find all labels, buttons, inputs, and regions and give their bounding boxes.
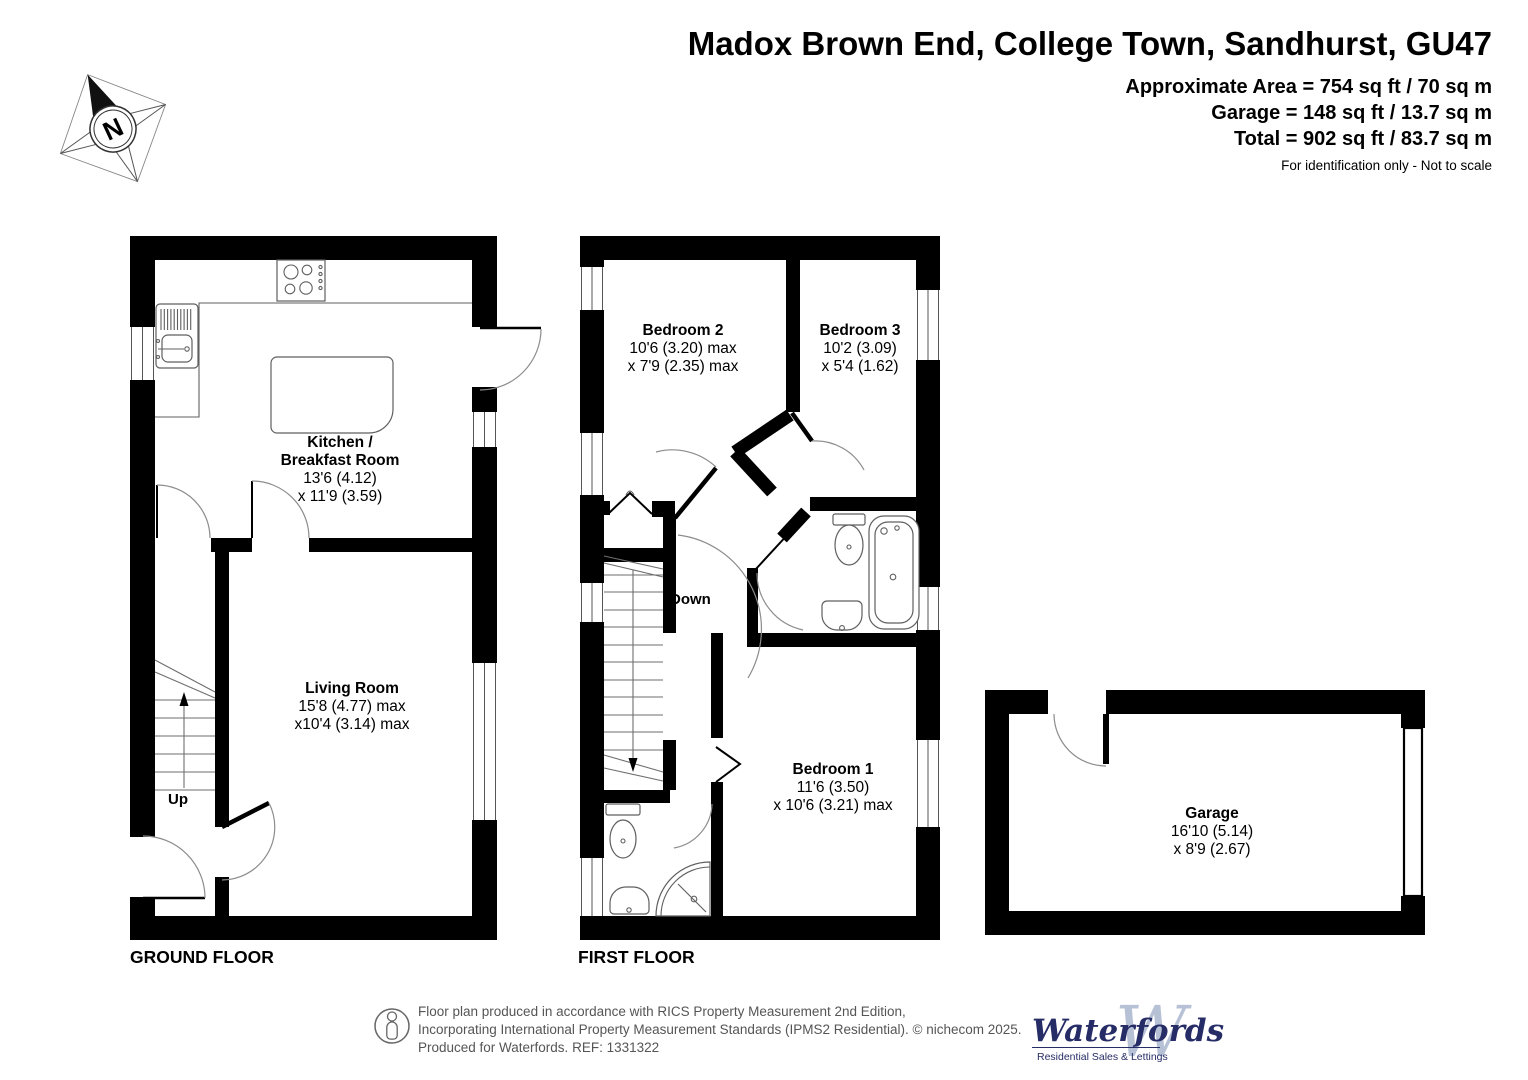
ensuite-sink [610, 887, 649, 914]
bathroom-door-leaf [755, 532, 790, 570]
ground-floor-plan: Kitchen / Breakfast Room 13'6 (4.12) x 1… [130, 236, 541, 967]
compass-icon: N [35, 50, 190, 206]
approximate-area-text: Approximate Area = 754 sq ft / 70 sq m [1125, 76, 1492, 98]
hall-kitchen-door-arc [157, 485, 210, 538]
disclaimer-text: For identification only - Not to scale [1281, 158, 1492, 173]
garage-up-and-over-door [1404, 728, 1422, 896]
garage-area-text: Garage = 148 sq ft / 13.7 sq m [1211, 102, 1492, 124]
kitchen-island [271, 357, 393, 433]
svg-text:Breakfast Room: Breakfast Room [281, 452, 400, 469]
logo-name: Waterfords [1032, 1013, 1224, 1049]
bedroom2-label: Bedroom 2 [643, 322, 724, 339]
kitchen-hob [277, 260, 325, 301]
ensuite-door-arc [674, 804, 712, 848]
kitchen-fixtures [155, 260, 472, 433]
footer: Floor plan produced in accordance with R… [375, 991, 1224, 1073]
total-area-text: Total = 902 sq ft / 83.7 sq m [1234, 128, 1492, 150]
floorplan-page: Madox Brown End, College Town, Sandhurst… [0, 0, 1528, 1080]
svg-text:11'6 (3.50): 11'6 (3.50) [797, 779, 869, 796]
bedroom1-label: Bedroom 1 [793, 761, 874, 778]
garage-entry-door [1054, 714, 1109, 766]
bedroom3-door-leaf [792, 413, 812, 441]
svg-text:x 10'6 (3.21) max: x 10'6 (3.21) max [773, 797, 893, 814]
stairs-down-label: Down [670, 591, 711, 608]
first-floor-title: FIRST FLOOR [578, 947, 695, 967]
ensuite-toilet [606, 804, 640, 858]
garage-label: Garage [1185, 805, 1239, 822]
front-door-arc [143, 836, 205, 898]
svg-text:13'6 (4.12): 13'6 (4.12) [303, 470, 377, 487]
svg-text:x10'4 (3.14) max: x10'4 (3.14) max [295, 716, 410, 733]
bedroom2-wardrobe-doors [608, 491, 652, 514]
bedroom1-bifold-door [716, 747, 740, 782]
bathroom-sink [822, 601, 862, 630]
stairs-up-arrow [180, 692, 189, 706]
footer-line-3: Produced for Waterfords. REF: 1331322 [418, 1040, 659, 1055]
svg-text:16'10 (5.14): 16'10 (5.14) [1171, 823, 1253, 840]
svg-text:x 5'4 (1.62): x 5'4 (1.62) [821, 358, 898, 375]
page-title: Madox Brown End, College Town, Sandhurst… [688, 25, 1492, 62]
bedroom2-door-arc [656, 450, 716, 467]
waterfords-logo: W Waterfords Residential Sales & Letting… [1032, 991, 1224, 1073]
living-room-label: Living Room [305, 680, 399, 697]
first-floor-stairs [604, 556, 663, 781]
svg-text:x 8'9 (2.67): x 8'9 (2.67) [1173, 841, 1250, 858]
kitchen-side-door-arc [480, 329, 541, 390]
logo-tagline: Residential Sales & Lettings [1037, 1051, 1168, 1063]
person-icon [375, 1009, 409, 1043]
first-floor-diagonal-walls [735, 415, 806, 538]
first-floor-plan: Bedroom 2 10'6 (3.20) max x 7'9 (2.35) m… [578, 236, 940, 967]
header: Madox Brown End, College Town, Sandhurst… [688, 25, 1492, 173]
ensuite-fixtures [606, 804, 710, 916]
bedroom3-label: Bedroom 3 [820, 322, 901, 339]
bedroom2-door-leaf [675, 468, 716, 518]
svg-text:x 7'9 (2.35) max: x 7'9 (2.35) max [628, 358, 739, 375]
svg-text:10'6 (3.20) max: 10'6 (3.20) max [629, 340, 736, 357]
bathroom-toilet [833, 514, 865, 565]
garage-labels: Garage 16'10 (5.14) x 8'9 (2.67) [1171, 805, 1253, 858]
bathroom-bathtub [869, 516, 919, 629]
svg-text:10'2 (3.09): 10'2 (3.09) [823, 340, 897, 357]
ensuite-corner-shower [656, 862, 710, 916]
stairs-up-label: Up [168, 791, 188, 808]
bathroom-fixtures [822, 514, 919, 630]
ground-floor-stairs [155, 660, 215, 790]
bedroom3-door-arc [812, 441, 864, 470]
garage-plan: Garage 16'10 (5.14) x 8'9 (2.67) [985, 690, 1425, 935]
kitchen-sink [156, 304, 198, 368]
bathroom-door-arc [757, 573, 803, 630]
floorplan-canvas: Madox Brown End, College Town, Sandhurst… [0, 0, 1528, 1080]
footer-line-1: Floor plan produced in accordance with R… [418, 1004, 906, 1019]
hall-living-door-leaf [222, 803, 269, 827]
stairs-down-arrow [629, 758, 638, 772]
svg-text:x 11'9 (3.59): x 11'9 (3.59) [298, 488, 383, 505]
footer-line-2: Incorporating International Property Mea… [418, 1022, 1022, 1037]
kitchen-label: Kitchen / [307, 434, 373, 451]
ground-floor-title: GROUND FLOOR [130, 947, 274, 967]
svg-text:15'8 (4.77) max: 15'8 (4.77) max [298, 698, 405, 715]
